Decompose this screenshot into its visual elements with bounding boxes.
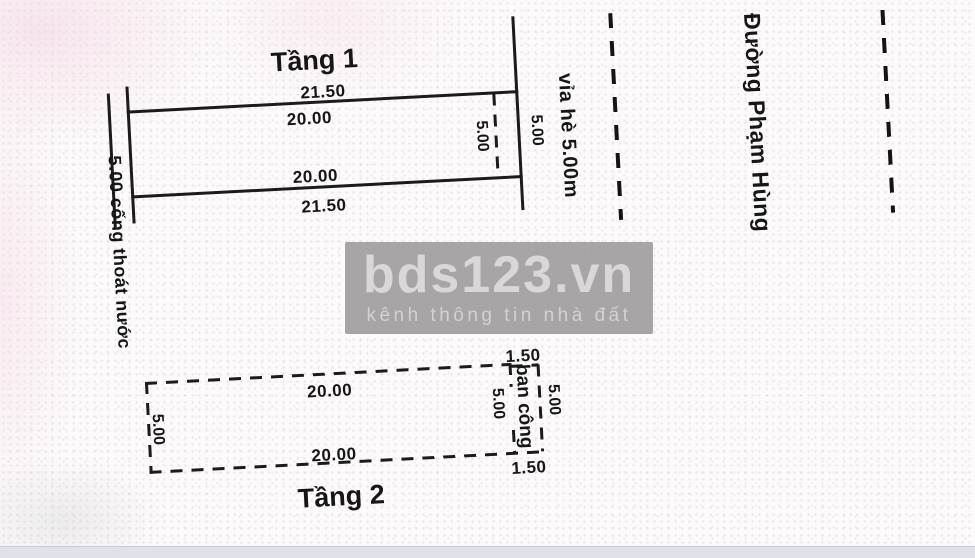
floor1-housefront-dashed-line: [492, 93, 499, 178]
balcony-dim-outer: 5.00: [544, 384, 564, 416]
street-name-label: Đường Phạm Hùng: [738, 12, 776, 233]
floor1-dim-depth-inner: 5.00: [472, 120, 492, 152]
watermark-title: bds123.vn: [363, 249, 635, 301]
site-plan-screenshot: Tầng 1 21.50 20.00 20.00 21.50 5.00 5.00…: [0, 0, 975, 558]
balcony-label: ban công: [511, 364, 537, 449]
balcony-dim-bottom: 1.50: [511, 457, 547, 479]
frontage-boundary-line: [511, 16, 524, 210]
watermark-badge: bds123.vn kênh thông tin nhà đất: [345, 242, 653, 334]
balcony-dim-inner: 5.00: [488, 388, 508, 420]
floor2-dim-bottom: 20.00: [311, 444, 357, 466]
floor2-dim-top: 20.00: [307, 380, 353, 402]
watermark-subtitle: kênh thông tin nhà đất: [366, 305, 631, 327]
floor2-title: Tầng 2: [297, 479, 386, 515]
floor1-dim-top-inner: 20.00: [286, 108, 332, 130]
balcony-outer-edge-dashed: [537, 364, 545, 451]
street-centerline-dashed: [880, 10, 895, 213]
sidewalk-outer-dashed-line: [608, 13, 623, 220]
floor1-dim-bottom-inner: 20.00: [292, 166, 338, 188]
bottom-scan-strip: [0, 546, 975, 558]
floor1-dim-depth-frontage: 5.00: [526, 114, 546, 146]
floor1-dim-bottom-outer: 21.50: [301, 195, 347, 217]
sidewalk-label: vỉa hè 5.00m: [553, 73, 583, 199]
floor2-dim-left: 5.00: [148, 413, 168, 445]
floor1-title: Tầng 1: [270, 43, 359, 79]
floor1-dim-top-outer: 21.50: [300, 81, 346, 103]
